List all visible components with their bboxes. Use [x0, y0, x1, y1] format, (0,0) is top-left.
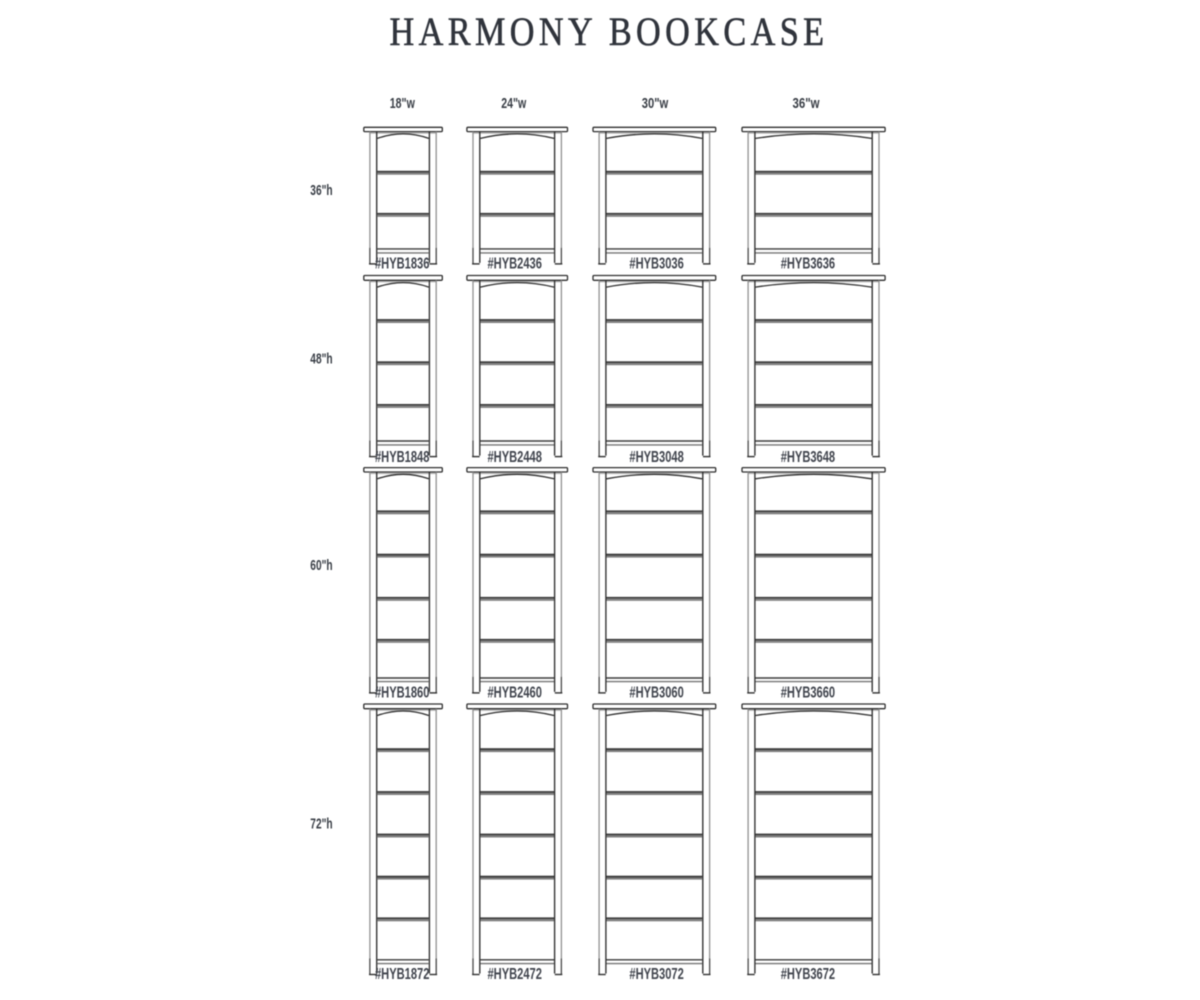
svg-text:48"h: 48"h [310, 352, 332, 368]
svg-text:HARMONY BOOKCASE: HARMONY BOOKCASE [390, 9, 829, 54]
svg-text:#HYB3648: #HYB3648 [781, 449, 836, 466]
svg-text:#HYB2472: #HYB2472 [488, 966, 542, 983]
svg-text:#HYB1836: #HYB1836 [375, 256, 429, 273]
svg-text:#HYB2460: #HYB2460 [488, 685, 542, 702]
svg-text:60"h: 60"h [310, 558, 332, 574]
svg-text:#HYB2436: #HYB2436 [488, 256, 542, 273]
svg-text:#HYB3036: #HYB3036 [629, 256, 683, 273]
svg-text:18"w: 18"w [390, 96, 415, 112]
svg-text:#HYB1872: #HYB1872 [375, 966, 429, 983]
svg-text:#HYB3072: #HYB3072 [629, 966, 683, 983]
svg-text:24"w: 24"w [501, 96, 526, 112]
svg-text:#HYB3060: #HYB3060 [629, 685, 683, 702]
svg-text:36"w: 36"w [793, 96, 820, 112]
svg-text:#HYB2448: #HYB2448 [488, 449, 543, 466]
svg-text:#HYB1848: #HYB1848 [375, 449, 430, 466]
svg-text:#HYB3048: #HYB3048 [629, 449, 684, 466]
svg-text:36"h: 36"h [310, 183, 332, 199]
svg-text:#HYB3660: #HYB3660 [781, 685, 835, 702]
svg-text:72"h: 72"h [310, 817, 332, 833]
svg-text:30"w: 30"w [642, 96, 669, 112]
svg-text:#HYB1860: #HYB1860 [375, 685, 429, 702]
svg-text:#HYB3636: #HYB3636 [781, 256, 835, 273]
svg-text:#HYB3672: #HYB3672 [781, 966, 835, 983]
